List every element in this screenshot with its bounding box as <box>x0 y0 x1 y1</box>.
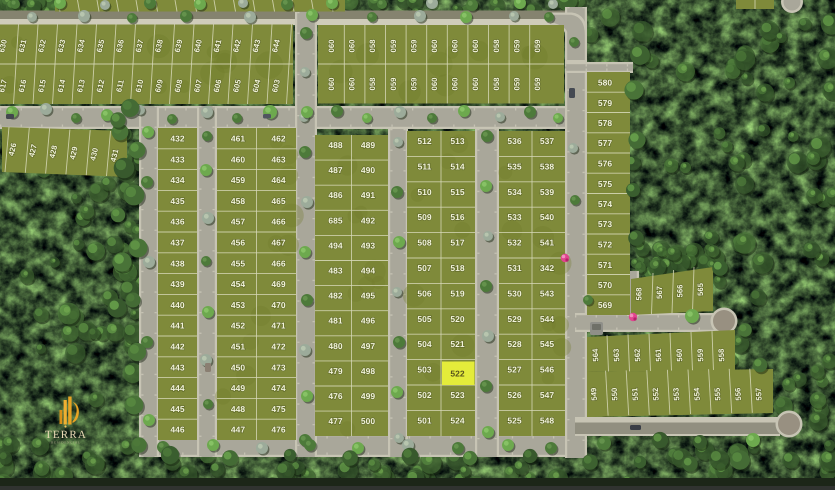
svg-text:060: 060 <box>348 39 357 53</box>
svg-text:482: 482 <box>328 291 342 301</box>
svg-text:544: 544 <box>540 314 554 324</box>
svg-text:446: 446 <box>170 425 184 435</box>
svg-text:RESIDENCIAL: RESIDENCIAL <box>51 441 81 445</box>
svg-text:495: 495 <box>361 291 375 301</box>
svg-text:445: 445 <box>170 404 184 414</box>
svg-text:557: 557 <box>754 387 764 401</box>
svg-text:539: 539 <box>540 187 554 197</box>
svg-text:548: 548 <box>540 415 554 425</box>
svg-text:060: 060 <box>430 39 439 53</box>
svg-text:571: 571 <box>598 260 612 270</box>
svg-text:530: 530 <box>507 288 521 298</box>
svg-text:467: 467 <box>271 238 285 248</box>
svg-text:523: 523 <box>450 390 464 400</box>
svg-text:504: 504 <box>417 339 431 349</box>
svg-text:560: 560 <box>675 348 685 362</box>
svg-text:452: 452 <box>231 321 245 331</box>
svg-text:453: 453 <box>231 300 245 310</box>
svg-text:463: 463 <box>271 154 285 164</box>
svg-text:551: 551 <box>630 387 640 401</box>
svg-text:464: 464 <box>271 175 285 185</box>
svg-text:541: 541 <box>540 238 554 248</box>
svg-text:511: 511 <box>418 161 432 171</box>
svg-text:438: 438 <box>170 258 184 268</box>
svg-text:060: 060 <box>348 77 357 91</box>
svg-text:473: 473 <box>271 362 285 372</box>
svg-text:481: 481 <box>328 316 342 326</box>
svg-text:545: 545 <box>540 339 554 349</box>
svg-text:537: 537 <box>540 136 554 146</box>
svg-text:479: 479 <box>328 366 342 376</box>
svg-text:575: 575 <box>598 179 612 189</box>
svg-text:059: 059 <box>533 39 542 53</box>
svg-text:443: 443 <box>170 362 184 372</box>
svg-text:685: 685 <box>328 215 342 225</box>
svg-text:568: 568 <box>635 287 644 301</box>
svg-text:059: 059 <box>409 77 418 91</box>
svg-text:451: 451 <box>231 342 245 352</box>
svg-text:486: 486 <box>328 190 342 200</box>
svg-text:521: 521 <box>450 339 464 349</box>
svg-text:437: 437 <box>170 238 184 248</box>
svg-text:507: 507 <box>417 263 431 273</box>
svg-text:447: 447 <box>231 425 245 435</box>
svg-text:552: 552 <box>651 387 661 401</box>
svg-text:531: 531 <box>507 263 521 273</box>
svg-text:459: 459 <box>231 175 245 185</box>
svg-text:470: 470 <box>271 300 285 310</box>
svg-text:540: 540 <box>540 212 554 222</box>
svg-text:456: 456 <box>231 238 245 248</box>
svg-text:058: 058 <box>492 77 501 91</box>
svg-text:578: 578 <box>598 118 612 128</box>
svg-text:505: 505 <box>417 314 431 324</box>
svg-text:060: 060 <box>430 77 439 91</box>
svg-text:520: 520 <box>450 314 464 324</box>
svg-text:439: 439 <box>170 279 184 289</box>
svg-text:506: 506 <box>417 288 431 298</box>
svg-text:489: 489 <box>361 140 375 150</box>
svg-text:465: 465 <box>271 196 285 206</box>
svg-text:059: 059 <box>512 77 521 91</box>
svg-text:059: 059 <box>533 77 542 91</box>
svg-text:563: 563 <box>612 348 622 362</box>
svg-text:546: 546 <box>540 365 554 375</box>
svg-text:580: 580 <box>598 78 612 88</box>
svg-text:060: 060 <box>451 39 460 53</box>
svg-text:572: 572 <box>598 240 612 250</box>
svg-text:529: 529 <box>507 314 521 324</box>
svg-text:509: 509 <box>417 212 431 222</box>
svg-text:488: 488 <box>328 140 342 150</box>
svg-text:494: 494 <box>361 266 375 276</box>
svg-text:558: 558 <box>717 348 727 362</box>
svg-text:460: 460 <box>231 154 245 164</box>
svg-text:449: 449 <box>231 383 245 393</box>
svg-text:565: 565 <box>696 282 705 296</box>
svg-text:058: 058 <box>368 39 377 53</box>
svg-text:455: 455 <box>231 258 245 268</box>
svg-text:434: 434 <box>170 175 184 185</box>
svg-text:570: 570 <box>598 280 612 290</box>
svg-text:497: 497 <box>361 341 375 351</box>
svg-text:469: 469 <box>271 279 285 289</box>
svg-text:483: 483 <box>328 266 342 276</box>
svg-text:577: 577 <box>598 138 612 148</box>
svg-text:555: 555 <box>713 387 723 401</box>
svg-text:462: 462 <box>271 134 285 144</box>
svg-text:514: 514 <box>450 161 464 171</box>
svg-text:436: 436 <box>170 217 184 227</box>
svg-text:461: 461 <box>231 134 245 144</box>
svg-text:441: 441 <box>170 321 184 331</box>
svg-text:559: 559 <box>696 348 706 362</box>
svg-text:496: 496 <box>361 316 375 326</box>
svg-text:534: 534 <box>507 187 521 197</box>
svg-text:522: 522 <box>450 369 464 379</box>
svg-text:433: 433 <box>170 154 184 164</box>
svg-text:059: 059 <box>512 39 521 53</box>
svg-text:466: 466 <box>271 217 285 227</box>
svg-text:525: 525 <box>507 415 521 425</box>
svg-text:454: 454 <box>231 279 245 289</box>
svg-text:574: 574 <box>598 199 612 209</box>
svg-text:432: 432 <box>170 134 184 144</box>
svg-text:533: 533 <box>507 212 521 222</box>
svg-text:538: 538 <box>540 161 554 171</box>
svg-text:501: 501 <box>417 415 431 425</box>
svg-text:579: 579 <box>598 98 612 108</box>
svg-text:513: 513 <box>450 136 464 146</box>
svg-text:510: 510 <box>417 187 431 197</box>
svg-text:442: 442 <box>170 342 184 352</box>
svg-text:576: 576 <box>598 159 612 169</box>
svg-text:515: 515 <box>450 187 464 197</box>
svg-text:466: 466 <box>271 258 285 268</box>
svg-text:493: 493 <box>361 240 375 250</box>
svg-text:528: 528 <box>507 339 521 349</box>
svg-text:499: 499 <box>361 391 375 401</box>
svg-text:060: 060 <box>451 77 460 91</box>
svg-text:549: 549 <box>589 387 599 401</box>
svg-text:060: 060 <box>327 77 336 91</box>
svg-text:060: 060 <box>471 39 480 53</box>
svg-text:573: 573 <box>598 219 612 229</box>
svg-text:059: 059 <box>389 39 398 53</box>
svg-text:562: 562 <box>633 348 643 362</box>
svg-text:508: 508 <box>417 238 431 248</box>
svg-text:476: 476 <box>271 425 285 435</box>
svg-text:476: 476 <box>328 391 342 401</box>
svg-text:554: 554 <box>692 387 702 401</box>
svg-text:503: 503 <box>417 365 431 375</box>
svg-text:550: 550 <box>610 387 620 401</box>
svg-text:448: 448 <box>231 404 245 414</box>
svg-text:532: 532 <box>507 238 521 248</box>
svg-text:058: 058 <box>368 77 377 91</box>
svg-text:059: 059 <box>409 39 418 53</box>
svg-text:444: 444 <box>170 383 184 393</box>
svg-text:474: 474 <box>271 383 285 393</box>
svg-text:512: 512 <box>417 136 431 146</box>
svg-text:TERRA: TERRA <box>45 429 87 441</box>
svg-text:526: 526 <box>507 390 521 400</box>
svg-text:440: 440 <box>170 300 184 310</box>
svg-text:516: 516 <box>450 212 464 222</box>
svg-text:547: 547 <box>540 390 554 400</box>
svg-text:059: 059 <box>389 77 398 91</box>
svg-text:487: 487 <box>328 165 342 175</box>
svg-text:518: 518 <box>450 263 464 273</box>
svg-text:475: 475 <box>271 404 285 414</box>
svg-text:517: 517 <box>450 238 464 248</box>
svg-text:060: 060 <box>327 39 336 53</box>
svg-text:536: 536 <box>507 136 521 146</box>
svg-text:569: 569 <box>598 300 612 310</box>
svg-text:457: 457 <box>231 217 245 227</box>
svg-text:492: 492 <box>361 215 375 225</box>
svg-text:566: 566 <box>676 284 685 298</box>
svg-text:060: 060 <box>471 77 480 91</box>
svg-text:502: 502 <box>417 390 431 400</box>
svg-text:564: 564 <box>591 348 601 362</box>
svg-text:450: 450 <box>231 362 245 372</box>
svg-text:458: 458 <box>231 196 245 206</box>
svg-text:490: 490 <box>361 165 375 175</box>
svg-text:543: 543 <box>540 288 554 298</box>
svg-text:471: 471 <box>271 321 285 331</box>
svg-text:494: 494 <box>328 240 342 250</box>
svg-text:342: 342 <box>540 263 554 273</box>
svg-text:519: 519 <box>450 288 464 298</box>
svg-text:556: 556 <box>733 387 743 401</box>
svg-text:567: 567 <box>655 286 664 299</box>
svg-text:435: 435 <box>170 196 184 206</box>
svg-text:535: 535 <box>507 161 521 171</box>
svg-text:058: 058 <box>492 39 501 53</box>
svg-text:480: 480 <box>328 341 342 351</box>
svg-text:477: 477 <box>328 416 342 426</box>
svg-text:472: 472 <box>271 342 285 352</box>
svg-text:524: 524 <box>450 415 464 425</box>
svg-text:491: 491 <box>361 190 375 200</box>
svg-text:500: 500 <box>361 416 375 426</box>
svg-text:553: 553 <box>671 387 681 401</box>
svg-text:561: 561 <box>654 348 664 362</box>
svg-text:527: 527 <box>507 365 521 375</box>
svg-text:498: 498 <box>361 366 375 376</box>
